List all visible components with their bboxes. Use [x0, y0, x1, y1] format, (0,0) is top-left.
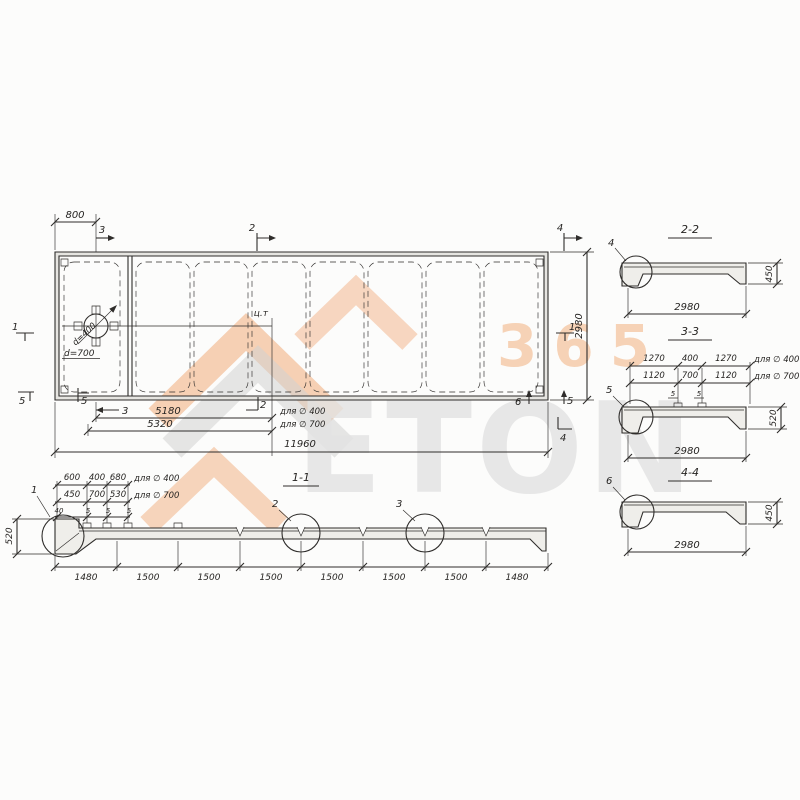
drawing-page: ETON 365 d=400 d=700 ц.т 800: [0, 0, 800, 800]
dim-5: 5: [106, 507, 111, 515]
mark-1-right: 1: [569, 322, 575, 333]
panel-outline: [426, 262, 480, 392]
slab-profile: [622, 263, 746, 286]
extension-lines: [12, 519, 54, 554]
arrowhead-icon: [269, 235, 276, 241]
watermark-chevron-icon: [302, 290, 410, 342]
offset-5: 5: [697, 390, 702, 398]
dim-1500: 1500: [445, 573, 468, 583]
detail-label-4: 4: [608, 238, 614, 249]
mark-1-left: 1: [12, 322, 18, 333]
dim-700: 700: [682, 371, 698, 381]
dim-530: 530: [110, 490, 126, 500]
dim-1480: 1480: [506, 573, 529, 583]
hole-d700-label: d=700: [64, 349, 95, 359]
technical-drawing: ETON 365 d=400 d=700 ц.т 800: [0, 0, 800, 800]
offset-5: 5: [671, 390, 676, 398]
dim-2980: 2980: [674, 302, 699, 313]
dim-40: 40: [55, 507, 64, 515]
dim-5320: 5320: [147, 419, 172, 430]
dim-520: 520: [5, 527, 15, 544]
dim-400: 400: [682, 354, 698, 364]
note-for-d400: для ∅ 400: [753, 355, 799, 365]
dim-1500: 1500: [383, 573, 406, 583]
mark-3-bottom: 3: [122, 406, 128, 417]
dim-1500: 1500: [137, 573, 160, 583]
arrowhead-icon: [576, 235, 583, 241]
dim-1500: 1500: [198, 573, 221, 583]
dim-800: 800: [65, 210, 84, 221]
dim-1500: 1500: [260, 573, 283, 583]
detail-label-6: 6: [606, 476, 612, 487]
mark-6: 6: [515, 397, 521, 408]
note-for-d700: для ∅ 700: [279, 420, 325, 430]
slab-profile: [55, 519, 546, 554]
mark-5-left-a: 5: [19, 396, 25, 407]
hole-tabs: [83, 523, 182, 528]
dim-2980: 2980: [574, 313, 585, 338]
dim-1120: 1120: [643, 371, 665, 381]
dim-520: 520: [769, 409, 779, 426]
detail-label-3: 3: [396, 499, 402, 510]
section-1-1-title: 1-1: [292, 471, 310, 484]
dim-2980: 2980: [674, 446, 699, 457]
detail-leader: [615, 248, 626, 261]
hole-d400-label: d=400: [71, 321, 99, 348]
dim-1270: 1270: [643, 354, 665, 364]
section-mark-2-top: [257, 233, 269, 251]
section-2-2-title: 2-2: [681, 223, 699, 236]
dim-700: 700: [89, 490, 105, 500]
mark-2-bottom: 2: [260, 400, 266, 411]
dim-450: 450: [765, 265, 775, 282]
note-for-d400: для ∅ 400: [279, 407, 325, 417]
dim-1120: 1120: [715, 371, 737, 381]
note-for-d400: для ∅ 400: [133, 474, 179, 484]
dim-5: 5: [86, 507, 91, 515]
dim-5180: 5180: [155, 406, 180, 417]
mark-3-top: 3: [99, 225, 105, 236]
dim-450: 450: [64, 490, 80, 500]
dim-450: 450: [765, 504, 775, 521]
detail-label-5: 5: [606, 385, 612, 396]
dim-400: 400: [89, 473, 105, 483]
arrowhead-icon: [96, 407, 103, 413]
section-3-3-title: 3-3: [681, 325, 699, 338]
section-mark-4-top: [564, 233, 576, 251]
dim-11960: 11960: [284, 439, 316, 450]
center-of-gravity-label: ц.т: [254, 309, 269, 319]
mark-2-top: 2: [249, 223, 255, 234]
dim-2980: 2980: [674, 540, 699, 551]
mark-5-right: 5: [567, 396, 573, 407]
dim-1480: 1480: [75, 573, 98, 583]
dim-680: 680: [110, 473, 126, 483]
dim-1500: 1500: [321, 573, 344, 583]
arrowhead-icon: [108, 235, 115, 241]
detail-label-1: 1: [31, 485, 37, 496]
mark-4-bottom: 4: [560, 433, 566, 444]
dim-1270: 1270: [715, 354, 737, 364]
section-mark-1-left: [16, 333, 34, 341]
section-2-2: 2-2 4 450 2980: [608, 223, 783, 318]
mark-4-top: 4: [557, 223, 563, 234]
note-for-d700: для ∅ 700: [753, 372, 799, 382]
section-4-4-title: 4-4: [681, 466, 699, 479]
mark-5-left-b: 5: [81, 396, 87, 407]
dim-5: 5: [127, 507, 132, 515]
note-for-d700: для ∅ 700: [133, 491, 179, 501]
detail-label-2: 2: [272, 499, 278, 510]
panel-outline: [136, 262, 190, 392]
dim-600: 600: [64, 473, 80, 483]
